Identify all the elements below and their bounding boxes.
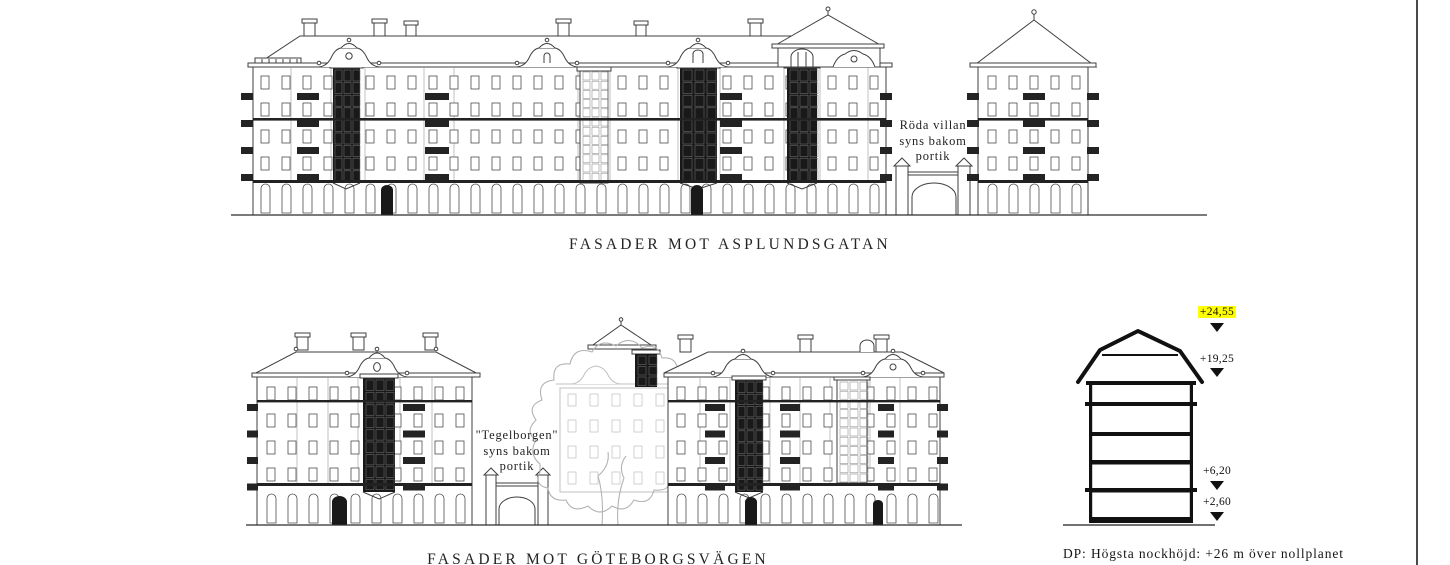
section-building [1078,331,1202,523]
ghost-building [556,366,682,492]
entrance-door [381,185,393,215]
entrance-door [745,497,757,525]
portico-arch [894,158,972,215]
annotation-tegelborgen: "Tegelborgen" syns bakom portik [461,428,573,475]
left-block [247,333,480,525]
annotation-line: Röda villan [900,118,967,132]
tent-roof-pavilion [772,7,884,67]
dark-bay-tower [732,376,766,498]
right-block [664,335,948,525]
down-triangle-icon [1210,481,1224,490]
dp-note: DP: Högsta nockhöjd: +26 m över nollplan… [1063,546,1344,562]
down-triangle-icon [1210,323,1224,332]
height-marker: +19,25 [1191,353,1243,365]
dark-bay-tower [330,64,363,189]
balcony-stack [241,93,253,181]
height-label: +19,25 [1200,353,1234,365]
height-label: +24,55 [1198,306,1236,318]
annotation-line: "Tegelborgen" [476,428,559,442]
light-bay-tower [577,67,611,183]
annotation-line: portik [500,459,535,473]
facade-drawing-asplundsgatan [228,6,1210,220]
down-triangle-icon [1210,512,1224,521]
sheet-border-line [1416,0,1418,565]
portico-arch [484,468,550,525]
dark-bay-tower [784,64,820,189]
facade-title-asplundsgatan: FASADER MOT ASPLUNDSGATAN [569,236,891,254]
height-label: +2,60 [1203,496,1231,508]
entrance-door [691,185,703,215]
height-marker: +24,55 [1191,306,1243,318]
down-triangle-icon [1210,368,1224,377]
entrance-door [873,500,883,525]
dark-bay-tower [360,374,398,499]
annotation-line: portik [916,149,951,163]
annotation-line: syns bakom [483,444,550,458]
entrance-door [332,496,347,525]
height-marker: +6,20 [1191,465,1243,477]
facade-title-goteborgsvagen: FASADER MOT GÖTEBORGSVÄGEN [427,551,769,565]
dark-bay-tower [677,64,720,189]
balcony-stack [247,404,258,491]
height-marker: +2,60 [1191,496,1243,508]
corner-pavilion [967,10,1099,215]
light-bay-tower [834,377,870,483]
architectural-drawing-sheet: Röda villan syns bakom portik FASADER MO… [0,0,1450,565]
chimneys [302,19,763,36]
facade-drawing-goteborgsvagen [240,316,965,532]
annotation-roda-villan: Röda villan syns bakom portik [877,118,989,165]
annotation-line: syns bakom [899,134,966,148]
height-label: +6,20 [1203,465,1231,477]
